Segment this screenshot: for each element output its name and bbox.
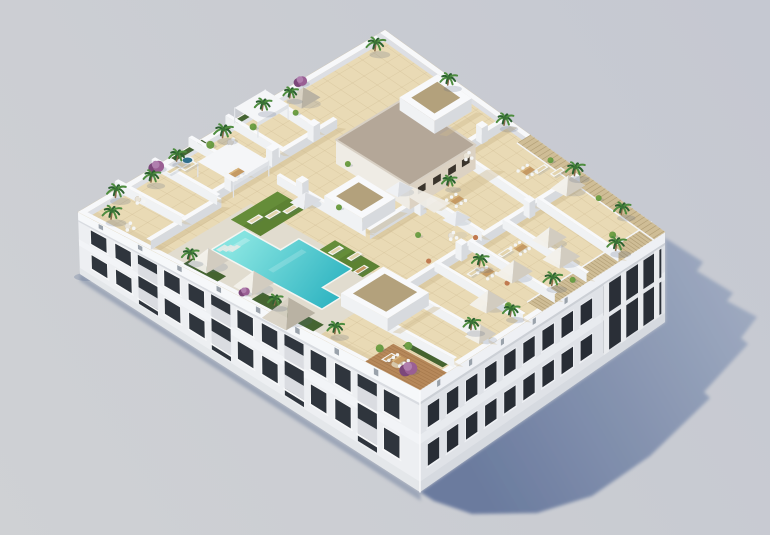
palm-crown	[334, 325, 338, 329]
dining-chair	[450, 195, 453, 198]
bistro-chair	[136, 201, 140, 205]
palm-shadow	[467, 330, 485, 336]
palm-crown	[551, 276, 555, 280]
bistro-chair	[132, 227, 136, 231]
palm-shadow	[258, 111, 276, 117]
palm-crown	[289, 90, 293, 94]
dining-chair	[234, 178, 237, 181]
dining-chair	[526, 176, 529, 179]
dining-chair	[224, 172, 227, 175]
palm-crown	[188, 251, 192, 255]
dining-chair	[245, 171, 248, 174]
palm-crown	[509, 307, 513, 311]
dining-chair	[519, 252, 522, 255]
dining-chair	[509, 246, 512, 249]
bistro-chair	[464, 158, 468, 162]
dining-chair	[526, 164, 529, 167]
dining-chair	[491, 274, 494, 277]
shrub-highlight	[405, 343, 409, 347]
dining-chair	[514, 243, 517, 246]
palm-shadow	[444, 86, 462, 92]
shrub-highlight	[570, 277, 573, 280]
bougainvillea-highlight	[152, 161, 160, 169]
bougainvillea-highlight	[403, 362, 412, 371]
palm-shadow	[331, 334, 349, 340]
palm-crown	[222, 128, 226, 132]
dining-chair	[230, 168, 233, 171]
colonnade-pillar	[604, 281, 609, 355]
palm-shadow	[506, 317, 524, 323]
dining-chair	[464, 199, 467, 202]
dining-chair	[387, 359, 390, 362]
palm-crown	[115, 188, 119, 192]
shrub-highlight	[548, 158, 551, 161]
shrub-highlight	[610, 232, 614, 236]
palm-shadow	[610, 251, 631, 258]
dining-chair	[392, 356, 395, 359]
palm-shadow	[185, 261, 203, 267]
palm-crown	[574, 166, 578, 170]
colonnade-pillar	[638, 259, 643, 332]
shrub-highlight	[416, 232, 419, 235]
palm-crown	[176, 152, 180, 156]
rooftop-render-screenshot	[0, 0, 770, 535]
palm-shadow	[147, 183, 165, 189]
bistro-chair	[125, 228, 129, 232]
dining-chair	[459, 202, 462, 205]
colonnade-pillar	[621, 270, 626, 344]
dining-chair	[523, 250, 526, 253]
palm-shadow	[569, 176, 590, 183]
dining-chair	[516, 169, 519, 172]
palm-crown	[447, 178, 451, 182]
palm-crown	[261, 101, 265, 105]
bistro-chair	[467, 151, 471, 155]
shrub-highlight	[596, 196, 599, 199]
pouf	[426, 258, 431, 263]
palm-crown	[615, 240, 619, 244]
dining-chair	[455, 205, 458, 208]
bistro-chair	[455, 236, 459, 240]
palm-crown	[150, 173, 154, 177]
dining-chair	[454, 193, 457, 196]
dining-chair	[521, 166, 524, 169]
dining-chair	[234, 165, 237, 168]
palm-crown	[374, 41, 378, 45]
dining-chair	[407, 359, 410, 362]
shrub-highlight	[250, 124, 254, 128]
palm-crown	[273, 297, 277, 301]
shrub-highlight	[207, 141, 211, 145]
palm-shadow	[546, 286, 567, 293]
apartment-building-aerial-render	[0, 0, 770, 535]
dining-chair	[240, 174, 243, 177]
dining-chair	[527, 247, 530, 250]
palm-crown	[110, 209, 114, 213]
shrub-highlight	[293, 110, 296, 113]
bougainvillea-highlight	[297, 76, 304, 83]
palm-shadow	[271, 306, 287, 312]
bistro-chair	[129, 221, 133, 225]
palm-crown	[478, 257, 482, 261]
bistro-chair	[452, 231, 456, 235]
dining-chair	[535, 170, 538, 173]
dining-chair	[518, 241, 521, 244]
dining-chair	[486, 277, 489, 280]
shrub-highlight	[345, 161, 348, 164]
palm-shadow	[106, 219, 127, 226]
palm-shadow	[617, 215, 635, 221]
palm-crown	[447, 76, 451, 80]
palm-crown	[470, 321, 474, 325]
dining-chair	[396, 353, 399, 356]
dining-chair	[530, 173, 533, 176]
palm-crown	[503, 116, 507, 120]
palm-crown	[621, 205, 625, 209]
bistro-chair	[449, 237, 453, 241]
shrub-highlight	[336, 205, 339, 208]
dining-chair	[445, 198, 448, 201]
bistro-chair	[470, 156, 474, 160]
colonnade-pillar	[654, 248, 659, 320]
palm-shadow	[500, 126, 518, 132]
bistro-chair	[139, 194, 143, 198]
palm-shadow	[172, 162, 190, 168]
palm-shadow	[287, 99, 303, 105]
bistro-chair	[142, 200, 146, 204]
palm-shadow	[217, 138, 238, 145]
palm-shadow	[370, 51, 391, 58]
palm-shadow	[475, 267, 493, 273]
palm-shadow	[110, 198, 131, 205]
pouf	[473, 235, 478, 240]
palm-shadow	[445, 187, 461, 193]
bougainvillea-highlight	[241, 287, 247, 293]
shrub-highlight	[376, 345, 380, 349]
